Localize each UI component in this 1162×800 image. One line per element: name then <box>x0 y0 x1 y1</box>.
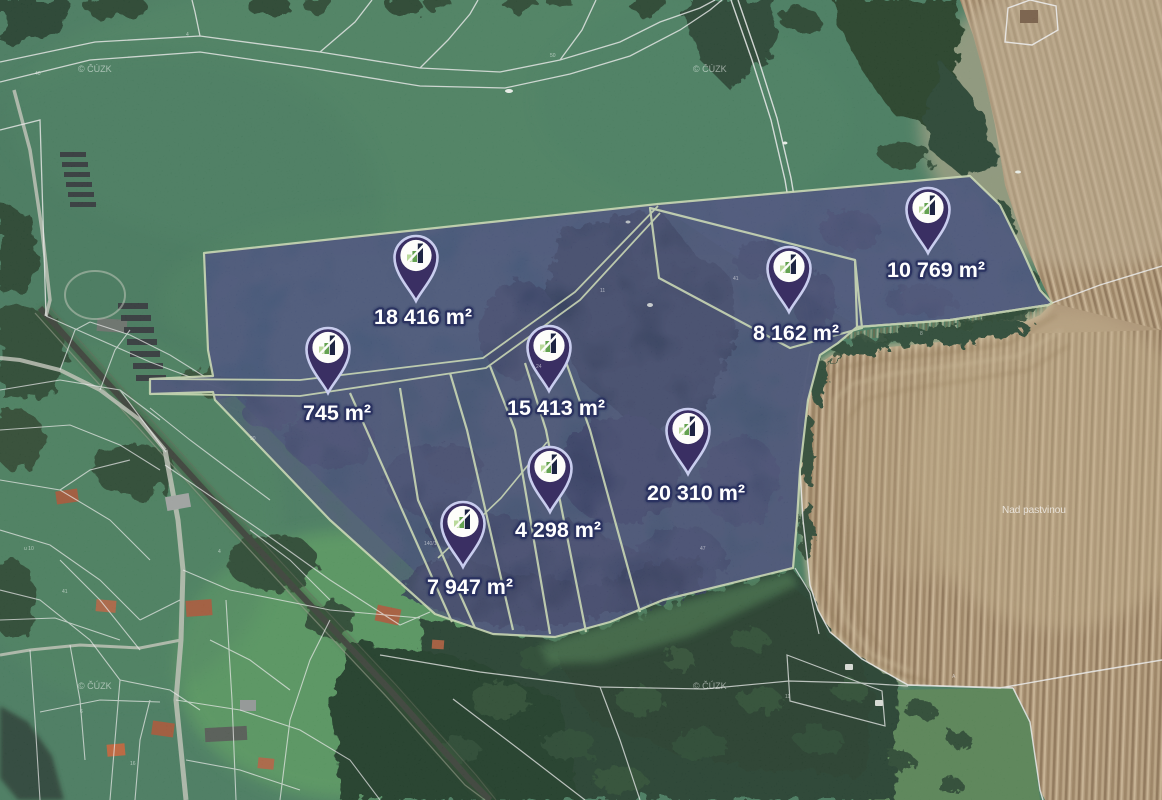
svg-text:24: 24 <box>536 364 542 370</box>
svg-text:© ČÚZK: © ČÚZK <box>78 681 112 691</box>
svg-text:41: 41 <box>733 276 739 282</box>
svg-text:4: 4 <box>186 32 189 38</box>
svg-text:7 947 m²: 7 947 m² <box>427 575 513 599</box>
svg-text:10 769 m²: 10 769 m² <box>887 258 985 282</box>
svg-text:745 m²: 745 m² <box>303 401 371 425</box>
svg-text:16: 16 <box>130 761 136 767</box>
svg-text:u 10: u 10 <box>24 546 34 552</box>
svg-text:90: 90 <box>250 436 256 442</box>
svg-text:11: 11 <box>785 694 790 700</box>
svg-text:50: 50 <box>550 53 556 59</box>
svg-text:11: 11 <box>600 288 605 294</box>
svg-text:© ČÚZK: © ČÚZK <box>78 64 112 74</box>
svg-text:6: 6 <box>80 709 83 715</box>
svg-text:© ČÚZK: © ČÚZK <box>693 64 727 74</box>
svg-text:140/1: 140/1 <box>424 541 437 547</box>
svg-text:41: 41 <box>62 589 68 595</box>
svg-text:40: 40 <box>35 71 41 77</box>
svg-text:8 162 m²: 8 162 m² <box>753 321 839 345</box>
svg-text:15 413 m²: 15 413 m² <box>507 396 605 420</box>
svg-text:4: 4 <box>218 549 221 555</box>
svg-text:Nad pastvinou: Nad pastvinou <box>1002 505 1066 516</box>
svg-text:20 310 m²: 20 310 m² <box>647 481 745 505</box>
svg-text:8: 8 <box>920 331 923 337</box>
svg-text:47: 47 <box>700 546 706 552</box>
svg-text:4 298 m²: 4 298 m² <box>515 518 601 542</box>
svg-text:18 416 m²: 18 416 m² <box>374 305 472 329</box>
svg-text:© ČÚZK: © ČÚZK <box>693 681 727 691</box>
